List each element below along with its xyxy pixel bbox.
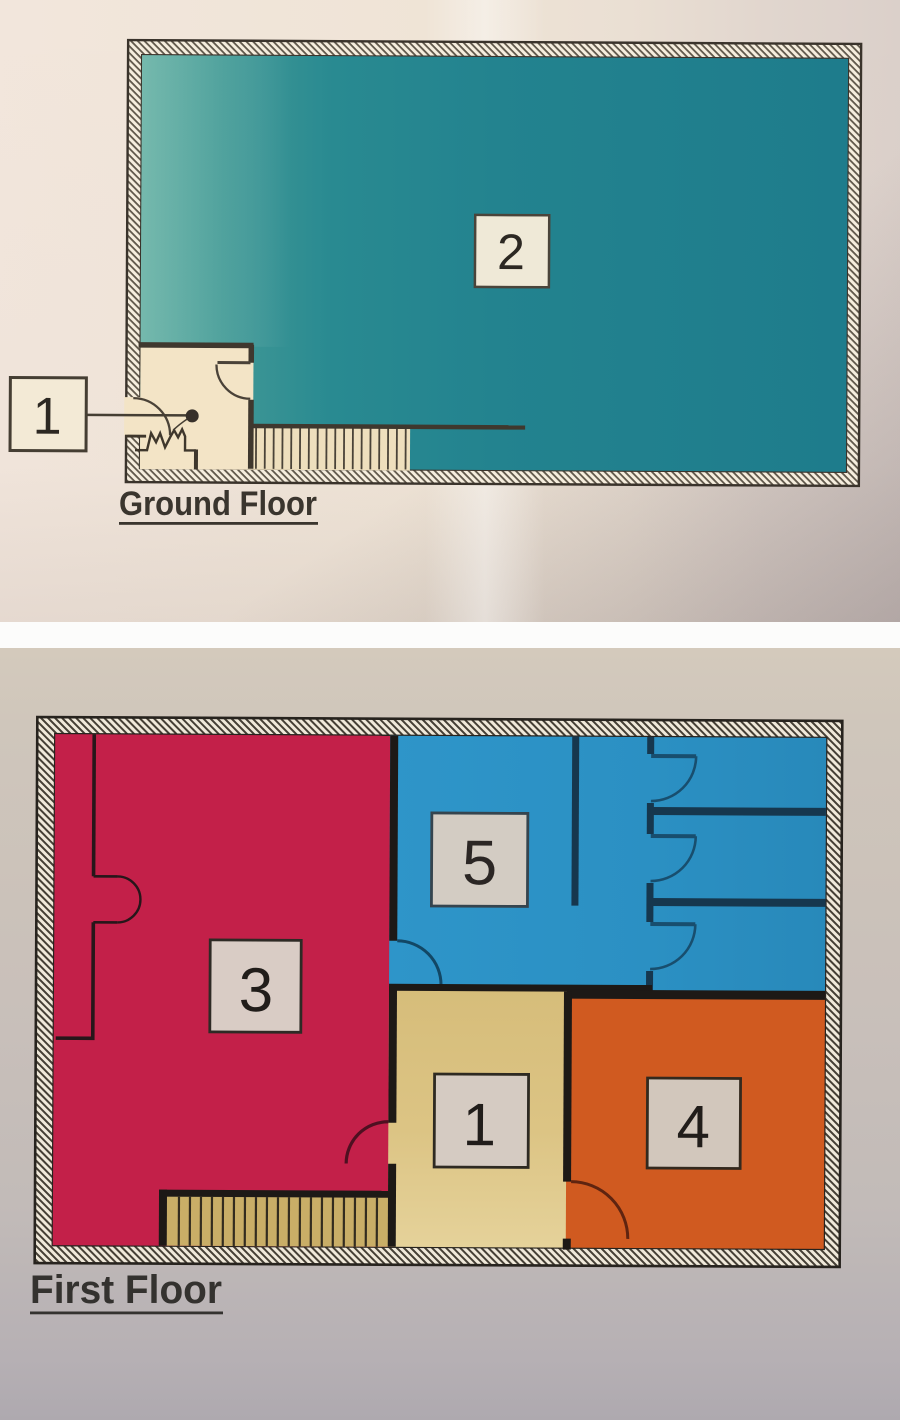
- svg-text:4: 4: [676, 1093, 710, 1160]
- svg-text:2: 2: [497, 224, 525, 280]
- svg-text:First Floor: First Floor: [30, 1268, 222, 1312]
- svg-text:3: 3: [239, 956, 274, 1025]
- svg-text:1: 1: [33, 388, 62, 446]
- svg-text:5: 5: [462, 828, 497, 898]
- svg-text:1: 1: [462, 1091, 496, 1158]
- svg-text:Ground Floor: Ground Floor: [119, 485, 317, 523]
